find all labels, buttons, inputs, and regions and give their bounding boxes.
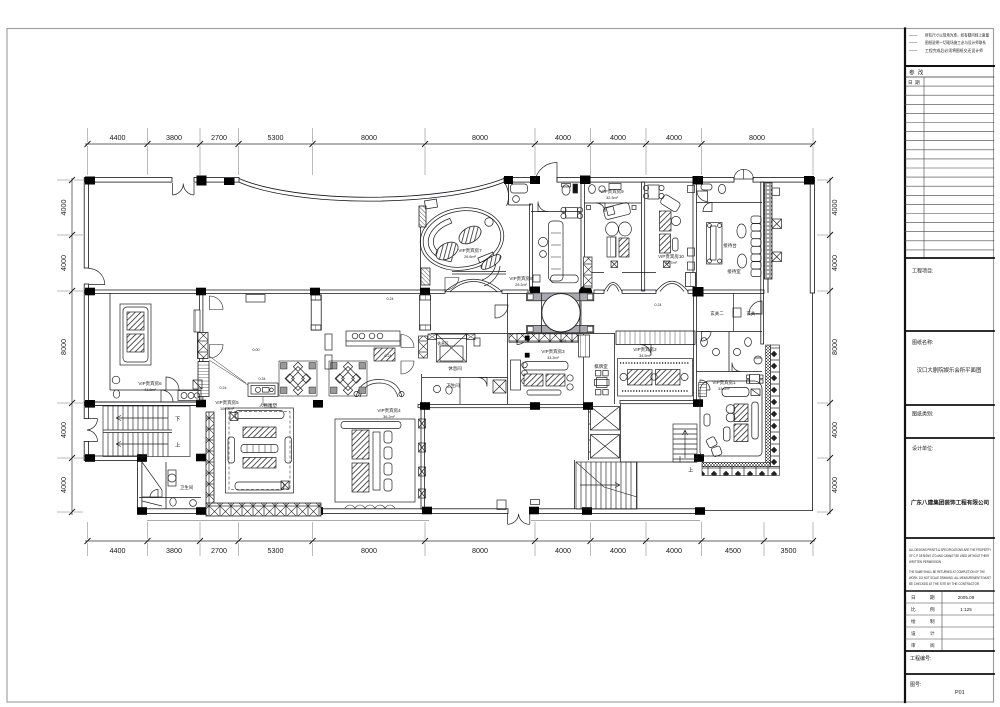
svg-text:0.24: 0.24 [387, 297, 394, 301]
svg-text:5300: 5300 [268, 133, 284, 142]
svg-text:玄关一: 玄关一 [746, 310, 760, 317]
svg-text:例: 例 [930, 606, 935, 613]
svg-text:卫生间: 卫生间 [180, 484, 193, 491]
svg-text:0.24: 0.24 [385, 354, 392, 358]
svg-text:33.5m²: 33.5m² [718, 387, 731, 391]
svg-text:审: 审 [911, 642, 916, 649]
svg-text:0.24: 0.24 [220, 386, 227, 390]
svg-text:棋牌室: 棋牌室 [594, 363, 608, 370]
svg-text:比: 比 [911, 606, 916, 613]
svg-text:8000: 8000 [59, 339, 68, 355]
svg-text:接待室: 接待室 [727, 268, 741, 275]
svg-text:8000: 8000 [749, 133, 765, 142]
svg-text:WORK. DO NOT SCALE DRAWING. AL: WORK. DO NOT SCALE DRAWING. ALL MEASUREM… [909, 575, 991, 580]
svg-text:制: 制 [930, 618, 935, 625]
svg-text:VIP贵宾房5: VIP贵宾房5 [215, 399, 239, 406]
svg-text:4000: 4000 [666, 133, 682, 142]
svg-text:人物雕塑: 人物雕塑 [259, 402, 277, 409]
svg-text:34.5m²: 34.5m² [639, 354, 652, 358]
svg-text:下: 下 [175, 416, 181, 423]
svg-text:ALL DESIGNS PRINTS & SPECIFICA: ALL DESIGNS PRINTS & SPECIFICATIONS ARE … [909, 547, 991, 552]
svg-text:2005.09: 2005.09 [958, 595, 975, 600]
svg-text:VIP贵宾房9: VIP贵宾房9 [600, 188, 624, 195]
svg-text:4000: 4000 [555, 546, 571, 555]
svg-text:8000: 8000 [830, 339, 839, 355]
svg-text:OF C.P. DESIGNS LTD.AND CANNOT: OF C.P. DESIGNS LTD.AND CANNOT BE USED W… [909, 553, 989, 558]
svg-text:工程完成后必须将图纸交还设计师: 工程完成后必须将图纸交还设计师 [925, 47, 983, 53]
svg-text:计: 计 [930, 630, 935, 637]
svg-text:4000: 4000 [666, 546, 682, 555]
svg-text:8000: 8000 [361, 133, 377, 142]
svg-text:WRITTEN PERMISSION: WRITTEN PERMISSION [909, 559, 941, 564]
svg-text:接待台: 接待台 [723, 242, 737, 249]
svg-text:4000: 4000 [830, 477, 839, 493]
svg-text:广东八建集团装饰工程有限公司: 广东八建集团装饰工程有限公司 [911, 499, 990, 507]
svg-text:阅: 阅 [930, 642, 935, 649]
svg-text:THE SAME SHALL BE RETURNED AT: THE SAME SHALL BE RETURNED AT COMPLETION… [909, 569, 985, 574]
svg-text:3800: 3800 [166, 546, 182, 555]
svg-text:4000: 4000 [59, 200, 68, 216]
svg-text:4000: 4000 [830, 200, 839, 216]
svg-text:VIP贵宾房3: VIP贵宾房3 [541, 348, 565, 355]
svg-text:4400: 4400 [110, 133, 126, 142]
svg-text:汉口大剧院娱乐会所平面图: 汉口大剧院娱乐会所平面图 [917, 366, 982, 374]
svg-text:4000: 4000 [610, 133, 626, 142]
svg-text:3500: 3500 [781, 546, 797, 555]
svg-text:VIP贵宾房7: VIP贵宾房7 [458, 247, 482, 254]
svg-text:4000: 4000 [59, 255, 68, 271]
svg-text:VIP贵宾房6: VIP贵宾房6 [138, 380, 162, 387]
svg-text:图纸名称:: 图纸名称: [912, 339, 933, 346]
svg-text:36.2m²: 36.2m² [383, 415, 396, 419]
svg-text:图纸说明一切现场施工必与设计师联系: 图纸说明一切现场施工必与设计师联系 [925, 39, 986, 45]
svg-text:2700: 2700 [211, 546, 227, 555]
svg-text:26.6m²: 26.6m² [464, 255, 477, 259]
svg-text:4500: 4500 [725, 546, 741, 555]
svg-text:图纸类别:: 图纸类别: [912, 411, 933, 418]
svg-text:41.8m²: 41.8m² [144, 388, 157, 392]
svg-text:1:125: 1:125 [960, 607, 972, 612]
svg-text:所有尺寸以现场为准，如有疑问线上度量: 所有尺寸以现场为准，如有疑问线上度量 [925, 32, 989, 38]
svg-text:4000: 4000 [610, 546, 626, 555]
svg-text:4000: 4000 [830, 255, 839, 271]
svg-text:设计单位:: 设计单位: [912, 445, 933, 452]
svg-text:VIP贵宾房4: VIP贵宾房4 [377, 407, 401, 414]
svg-text:8000: 8000 [472, 546, 488, 555]
svg-text:5300: 5300 [268, 546, 284, 555]
svg-text:0.34: 0.34 [259, 377, 266, 381]
svg-text:P01: P01 [955, 690, 965, 696]
svg-text:33.3m²: 33.3m² [547, 356, 560, 360]
svg-text:106.8m²: 106.8m² [220, 407, 235, 411]
svg-text:4000: 4000 [555, 133, 571, 142]
svg-text:4000: 4000 [59, 422, 68, 438]
svg-text:工程项目:: 工程项目: [912, 268, 933, 275]
svg-text:VIP贵宾房1: VIP贵宾房1 [712, 379, 736, 386]
svg-text:——: —— [909, 48, 918, 53]
svg-text:BE CHECKED AT THE SITE BY THE: BE CHECKED AT THE SITE BY THE CONTRACTOR [909, 581, 979, 586]
svg-text:工程编号:: 工程编号: [910, 655, 931, 662]
svg-text:29.2m²: 29.2m² [515, 283, 528, 287]
svg-text:3800: 3800 [166, 133, 182, 142]
svg-text:休息间: 休息间 [448, 365, 462, 372]
svg-text:4400: 4400 [110, 546, 126, 555]
svg-text:图号:: 图号: [910, 682, 921, 688]
svg-text:VIP贵宾房10: VIP贵宾房10 [658, 253, 684, 260]
svg-text:8000: 8000 [361, 546, 377, 555]
svg-text:4000: 4000 [59, 477, 68, 493]
svg-text:玄关二: 玄关二 [710, 310, 724, 317]
svg-text:32.3m²: 32.3m² [606, 196, 619, 200]
svg-text:23.7m²: 23.7m² [665, 261, 678, 265]
svg-text:8000: 8000 [472, 133, 488, 142]
svg-text:卫生间: 卫生间 [446, 382, 460, 389]
svg-text:上: 上 [688, 466, 694, 474]
svg-text:参 改: 参 改 [909, 69, 924, 77]
svg-text:——: —— [909, 33, 918, 38]
svg-text:休息区: 休息区 [437, 341, 449, 346]
svg-text:VIP贵宾房2: VIP贵宾房2 [633, 346, 657, 353]
svg-text:0.24: 0.24 [655, 303, 662, 307]
svg-text:绘: 绘 [911, 618, 916, 625]
svg-text:——: —— [909, 40, 918, 45]
svg-text:0.24: 0.24 [560, 339, 567, 343]
svg-text:设: 设 [911, 630, 916, 637]
svg-text:0.00: 0.00 [253, 348, 260, 352]
svg-text:4000: 4000 [830, 422, 839, 438]
svg-text:上: 上 [175, 441, 181, 449]
svg-text:2700: 2700 [211, 133, 227, 142]
svg-text:VIP贵宾房8: VIP贵宾房8 [509, 275, 533, 282]
